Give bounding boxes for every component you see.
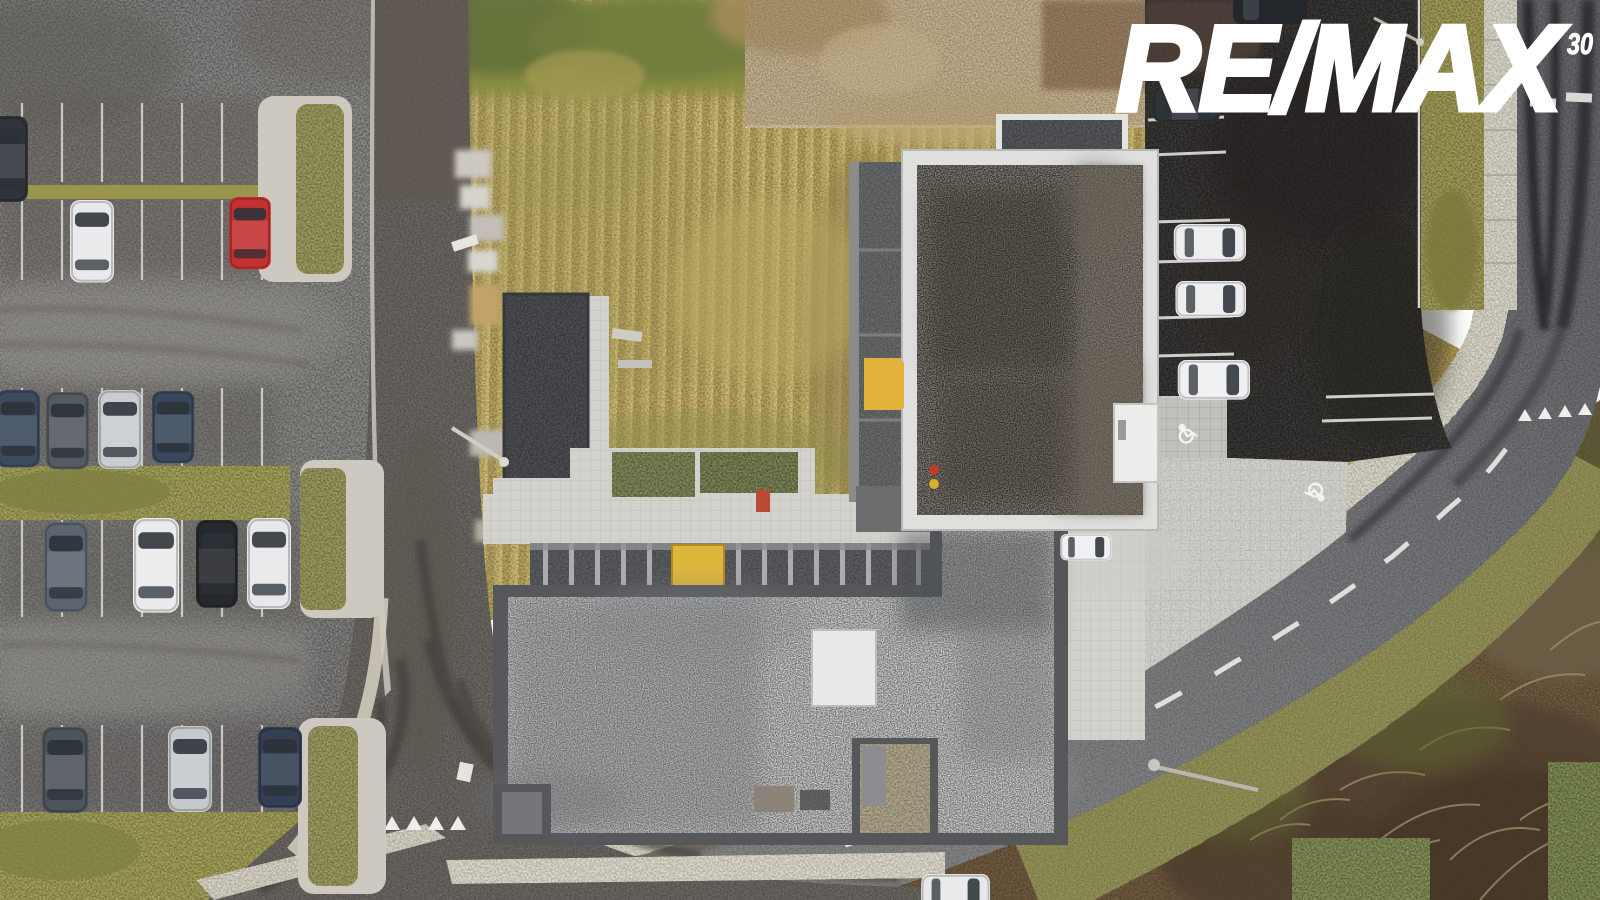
svg-text:30: 30 xyxy=(1567,27,1593,60)
svg-text:RE/MAX: RE/MAX xyxy=(1116,1,1568,137)
